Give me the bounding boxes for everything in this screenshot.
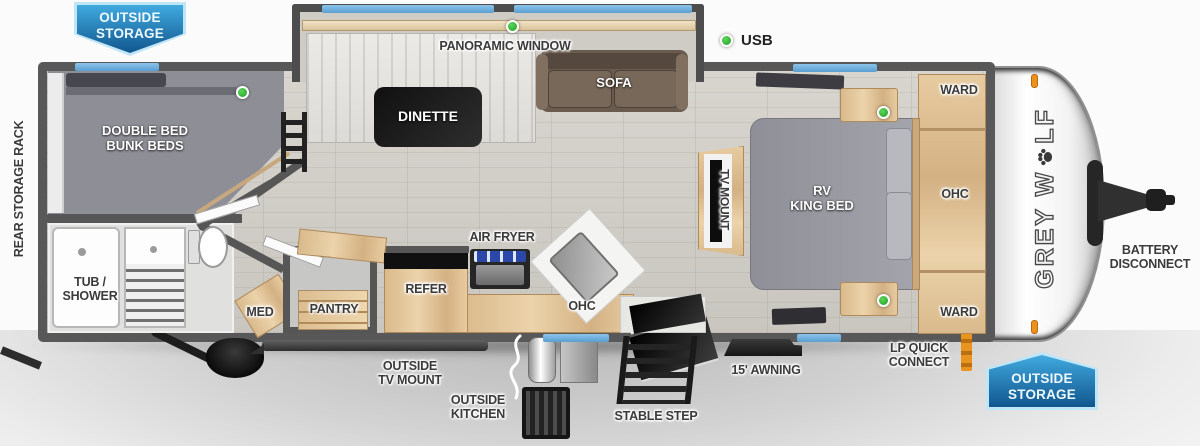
propane-tank: [528, 337, 556, 383]
tub-shower-label: TUB / SHOWER: [58, 276, 122, 304]
sofa-arm-right: [676, 54, 688, 110]
brand-text-part2: LF: [1031, 107, 1060, 144]
headboard: [912, 118, 920, 290]
shower-drain-icon: [150, 246, 157, 253]
refrigerator-top: [384, 253, 468, 269]
usb-indicator-bed-bottom-icon: [877, 294, 890, 307]
rear-mount-base: [206, 338, 264, 378]
tub-drain-icon: [78, 248, 86, 256]
outside-tv-mount-rail: [262, 340, 488, 351]
tv-mount-label: TV MOUNT: [717, 154, 730, 246]
med-label: MED: [240, 306, 280, 320]
king-bed-label-line2: KING BED: [772, 199, 872, 214]
bunk-ladder: [281, 112, 307, 172]
ward-rear-label: WARD: [932, 306, 986, 320]
rear-storage-rack-label: REAR STORAGE RACK: [13, 114, 27, 264]
usb-legend-label: USB: [741, 32, 773, 49]
bunk-label-line2: BUNK BEDS: [90, 139, 200, 154]
pillow-top: [886, 128, 912, 196]
banner-bottom-line2: STORAGE: [1008, 387, 1076, 403]
wardrobe-column: [918, 74, 986, 334]
panoramic-window-label: PANORAMIC WINDOW: [435, 40, 575, 54]
banner-top-line2: STORAGE: [96, 26, 164, 42]
ohc-kitchen-label: OHC: [556, 300, 608, 314]
banner-top-line1: OUTSIDE: [99, 10, 160, 26]
king-bed-label: RV KING BED: [772, 184, 872, 213]
griddle-icon: [522, 387, 570, 439]
lp-quick-connect-line2: CONNECT: [880, 356, 958, 370]
lp-quick-connect-fitting: [961, 331, 972, 371]
bunk-label-line1: DOUBLE BED: [90, 124, 200, 139]
lp-quick-connect-label: LP QUICK CONNECT: [880, 342, 958, 370]
floorplan-diagram: GREY W LF DINETTE SOFA PANORAMIC WINDOW …: [0, 0, 1200, 446]
outside-kitchen-line2: KITCHEN: [440, 408, 516, 422]
outside-storage-banner-bottom: OUTSIDE STORAGE: [986, 352, 1098, 410]
tub-label-line2: SHOWER: [58, 290, 122, 304]
range-front: [476, 265, 524, 285]
toilet: [198, 226, 228, 268]
lp-quick-connect-line1: LP QUICK: [880, 342, 958, 356]
ohc-bedroom-label: OHC: [930, 188, 980, 202]
sofa-back: [544, 53, 684, 69]
bunk-room-label: DOUBLE BED BUNK BEDS: [90, 124, 200, 153]
battery-disconnect-line1: BATTERY: [1104, 244, 1196, 258]
outside-kitchen-label: OUTSIDE KITCHEN: [440, 394, 516, 422]
dinette-table: DINETTE: [374, 87, 482, 147]
kitchen-window: [543, 334, 609, 342]
battery-disconnect-label: BATTERY DISCONNECT: [1104, 244, 1196, 272]
banner-body: OUTSIDE STORAGE: [77, 5, 183, 53]
shower-door: [124, 227, 186, 328]
stable-step-label: STABLE STEP: [608, 410, 704, 424]
bunk-window: [75, 63, 159, 71]
bedroom-bench: [772, 307, 827, 325]
pantry-label: PANTRY: [298, 303, 370, 317]
paw-icon: [1035, 147, 1055, 167]
hitch-a-frame: [1098, 180, 1150, 222]
tub-label-line1: TUB /: [58, 276, 122, 290]
slideout-window-left: [322, 5, 494, 13]
panoramic-window-sill: [302, 20, 696, 31]
refer-label: REFER: [396, 283, 456, 297]
banner-bottom-line1: OUTSIDE: [1011, 371, 1072, 387]
wardrobe-divider-bottom: [918, 270, 986, 273]
sofa-arm-left: [536, 54, 548, 110]
outside-tv-mount-line2: TV MOUNT: [358, 374, 462, 388]
clearance-light-top-icon: [1031, 74, 1038, 88]
usb-indicator-bed-top-icon: [877, 106, 890, 119]
slideout-window-right: [514, 5, 692, 13]
hitch-jack: [1163, 195, 1175, 205]
battery-disconnect-line2: DISCONNECT: [1104, 258, 1196, 272]
bunk-wall-trim: [48, 73, 64, 213]
pillow-bottom: [886, 192, 912, 260]
cooktop-burners: [474, 251, 526, 262]
wardrobe-divider-top: [918, 128, 986, 131]
outside-tv-mount-label: OUTSIDE TV MOUNT: [358, 360, 462, 388]
stable-step: [616, 336, 697, 404]
awning-case: [724, 339, 802, 356]
sofa-label: SOFA: [576, 76, 652, 91]
usb-legend-dot-icon: [720, 34, 733, 47]
air-fryer-label: AIR FRYER: [466, 231, 538, 245]
bedroom-window: [793, 64, 877, 72]
brand-logo: GREY W LF: [1031, 93, 1059, 303]
nightstand-top: [840, 88, 898, 122]
clearance-light-bottom-icon: [1031, 320, 1038, 334]
entry-door-window: [797, 334, 841, 342]
bunk-top-shadow: [66, 73, 166, 87]
ward-front-label: WARD: [934, 84, 984, 98]
brand-text-part1: GREY W: [1031, 170, 1060, 289]
usb-indicator-window-icon: [506, 20, 519, 33]
dinette-label: DINETTE: [398, 109, 458, 125]
awning-label: 15' AWNING: [720, 364, 812, 378]
king-bed-label-line1: RV: [772, 184, 872, 199]
outside-kitchen-line1: OUTSIDE: [440, 394, 516, 408]
usb-indicator-bunk-icon: [236, 86, 249, 99]
outside-tv-mount-line1: OUTSIDE: [358, 360, 462, 374]
outside-kitchen-box: [560, 335, 598, 383]
outside-storage-banner-top: OUTSIDE STORAGE: [74, 2, 186, 56]
bunk-edge-shadow: [66, 87, 236, 95]
